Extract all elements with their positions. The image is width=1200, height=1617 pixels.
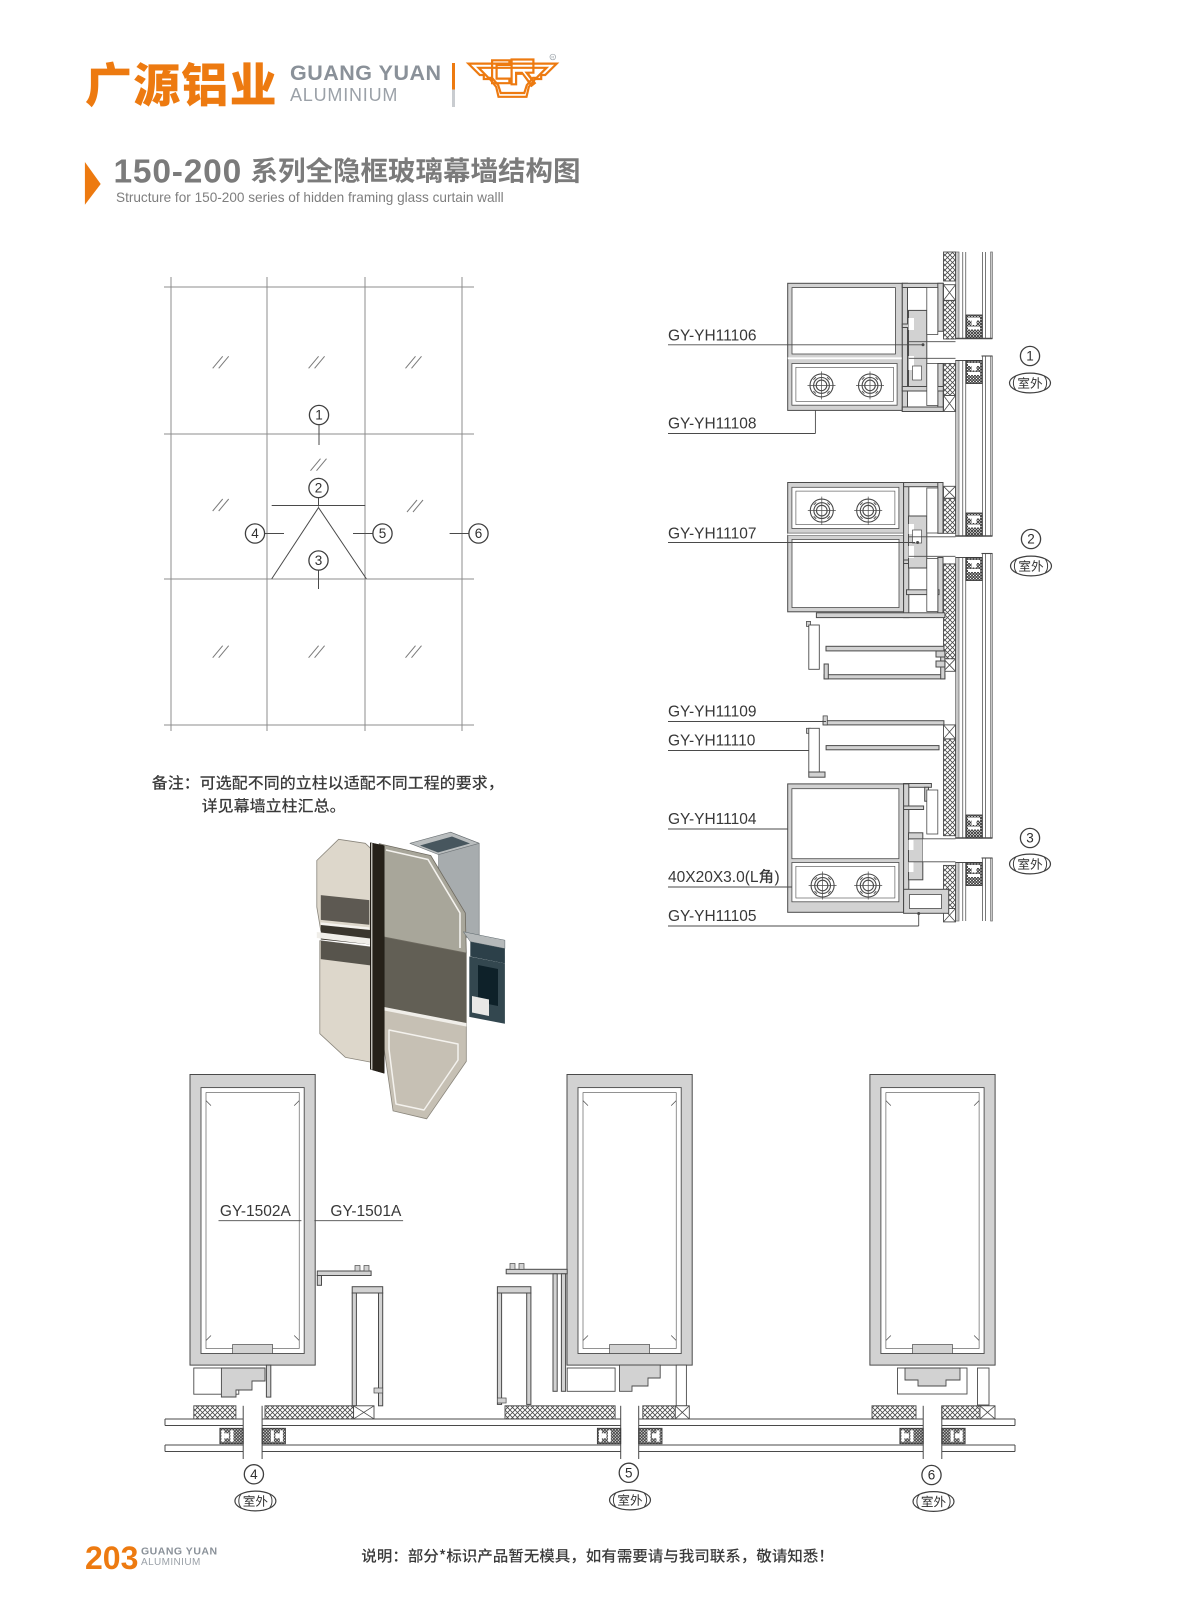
svg-text:Structure for 150-200 series o: Structure for 150-200 series of hidden f… xyxy=(116,190,504,205)
svg-text:1: 1 xyxy=(1026,349,1034,364)
svg-text:GY-1502A: GY-1502A xyxy=(220,1203,292,1220)
svg-text:R: R xyxy=(551,55,554,60)
svg-text:): ) xyxy=(775,869,780,886)
svg-text:GY-YH11106: GY-YH11106 xyxy=(668,327,756,344)
svg-text:203: 203 xyxy=(85,1540,138,1576)
svg-text:4: 4 xyxy=(250,1467,258,1482)
svg-text:2: 2 xyxy=(1027,532,1035,547)
svg-text:GY-1501A: GY-1501A xyxy=(330,1203,402,1220)
svg-text:6: 6 xyxy=(928,1468,936,1483)
svg-text:3: 3 xyxy=(315,553,323,568)
svg-text:GY-YH11107: GY-YH11107 xyxy=(668,526,756,543)
svg-text:GY-YH11109: GY-YH11109 xyxy=(668,704,756,721)
svg-text:GY-YH11108: GY-YH11108 xyxy=(668,416,756,433)
svg-text:GY-YH11105: GY-YH11105 xyxy=(668,908,756,925)
svg-text:4: 4 xyxy=(251,526,259,541)
svg-text:1: 1 xyxy=(315,408,323,423)
svg-text:ALUMINIUM: ALUMINIUM xyxy=(290,85,398,105)
svg-text:GY-YH11110: GY-YH11110 xyxy=(668,733,756,750)
svg-text:5: 5 xyxy=(625,1466,633,1481)
svg-text:6: 6 xyxy=(475,526,483,541)
svg-text:GUANG YUAN: GUANG YUAN xyxy=(141,1546,218,1558)
svg-text:GUANG YUAN: GUANG YUAN xyxy=(290,61,442,85)
svg-text:GY-YH11104: GY-YH11104 xyxy=(668,811,757,828)
svg-text:3: 3 xyxy=(1026,831,1034,846)
svg-text:5: 5 xyxy=(379,526,387,541)
svg-text:2: 2 xyxy=(315,481,323,496)
svg-text:150-200: 150-200 xyxy=(114,154,243,191)
svg-text:ALUMINIUM: ALUMINIUM xyxy=(141,1557,201,1568)
svg-text:40X20X3.0(L: 40X20X3.0(L xyxy=(668,869,759,886)
